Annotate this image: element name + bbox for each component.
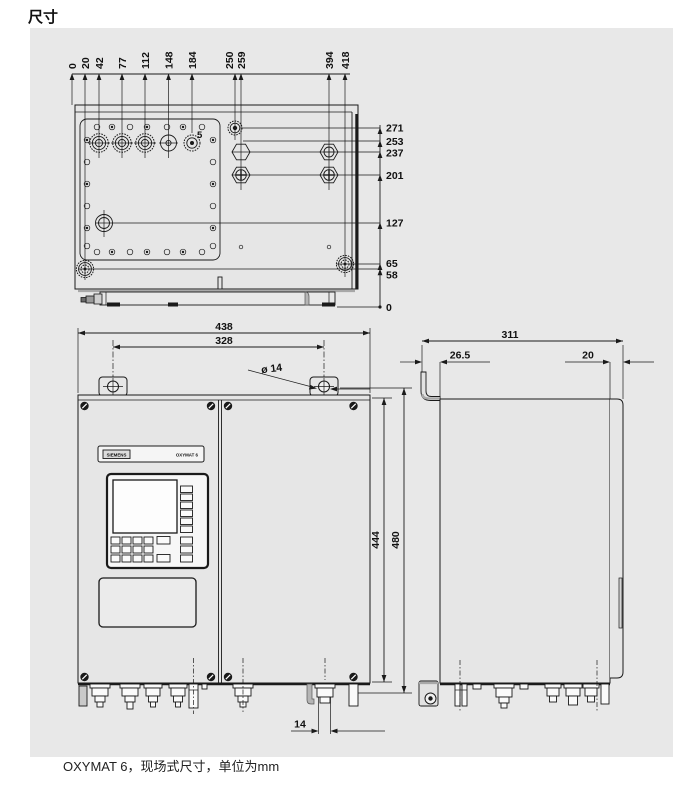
pipe	[349, 684, 358, 706]
y-dim-253: 253	[386, 136, 404, 148]
nameplate: SIEMENS OXYMAT 6	[98, 446, 204, 462]
brand-label: SIEMENS	[107, 452, 127, 457]
rail-plug	[94, 294, 102, 304]
display-screen	[113, 480, 177, 533]
drawing-page: 尺寸	[0, 0, 699, 794]
x-dim-250: 250	[224, 51, 236, 69]
model-label: OXYMAT 6	[176, 452, 199, 457]
mounting-tab-left	[99, 377, 127, 396]
dimension-drawing: 5	[0, 0, 699, 794]
mounting-tab-right	[310, 377, 338, 396]
top-view-body	[75, 105, 358, 289]
wall-bracket-bottom	[419, 681, 438, 706]
dim-328: 328	[215, 335, 233, 347]
x-dim-42: 42	[94, 57, 106, 69]
y-dim-201: 201	[386, 170, 404, 182]
x-dim-394: 394	[324, 51, 336, 69]
flow-window	[99, 578, 196, 627]
figure-caption: OXYMAT 6，现场式尺寸，单位为mm	[63, 756, 279, 775]
side-door	[610, 399, 623, 678]
y-dim-237: 237	[386, 148, 404, 160]
x-dim-0: 0	[67, 63, 79, 69]
center-tab	[218, 277, 222, 289]
dim-438: 438	[215, 321, 233, 333]
dim-20: 20	[582, 350, 594, 362]
dim-444: 444	[370, 531, 382, 549]
x-dim-77: 77	[117, 57, 129, 69]
keypad	[111, 537, 193, 563]
x-dim-112: 112	[140, 52, 152, 69]
door-handle	[619, 578, 622, 628]
dim-480: 480	[390, 531, 402, 549]
dim-311: 311	[502, 329, 519, 341]
rail-hook	[305, 292, 309, 305]
gland-callout: 5	[197, 130, 203, 141]
y-dim-271: 271	[386, 123, 404, 135]
x-dim-259: 259	[236, 51, 248, 69]
y-dim-0: 0	[386, 302, 392, 314]
x-dim-20: 20	[80, 57, 92, 69]
x-dim-418: 418	[340, 51, 352, 69]
side-body	[440, 399, 610, 683]
x-dim-148: 148	[164, 51, 176, 69]
dim-14: 14	[294, 719, 306, 731]
display-unit	[107, 474, 208, 568]
x-dim-184: 184	[187, 51, 199, 69]
dim-26-5: 26.5	[450, 350, 471, 362]
y-dim-58: 58	[386, 270, 398, 282]
y-dim-127: 127	[386, 218, 404, 230]
y-dim-65: 65	[386, 258, 398, 270]
